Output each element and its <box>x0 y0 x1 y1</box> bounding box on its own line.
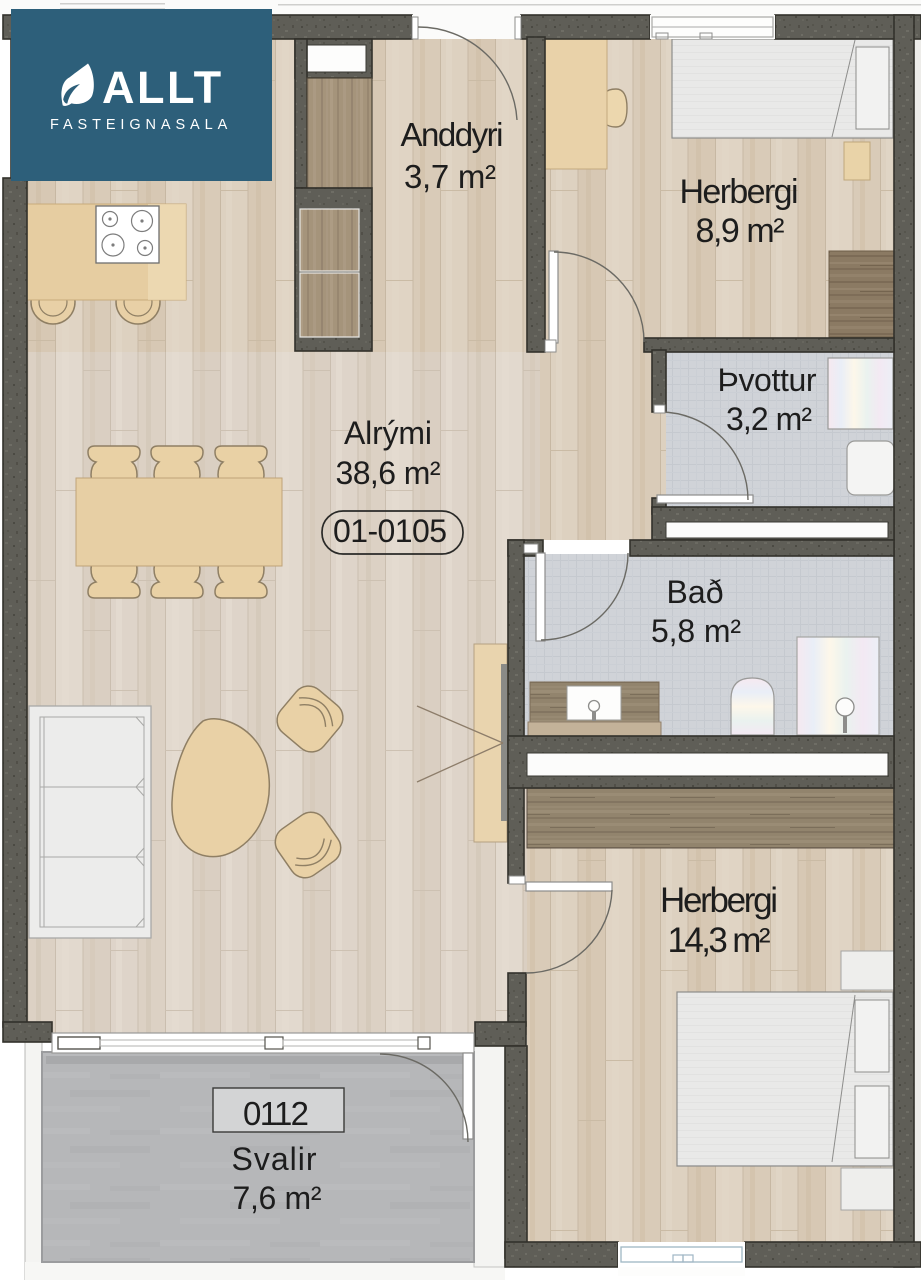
svg-text:Anddyri: Anddyri <box>401 116 504 153</box>
svg-text:ALLT: ALLT <box>102 62 224 113</box>
svg-text:Þvottur: Þvottur <box>718 362 817 398</box>
svg-text:Herbergi: Herbergi <box>660 881 778 920</box>
svg-text:3,2 m²: 3,2 m² <box>726 401 812 437</box>
svg-text:7,6 m²: 7,6 m² <box>233 1180 322 1216</box>
svg-text:01-0105: 01-0105 <box>333 513 447 549</box>
svg-text:FASTEIGNASALA: FASTEIGNASALA <box>50 117 232 133</box>
svg-text:5,8 m²: 5,8 m² <box>651 613 741 649</box>
svg-text:38,6 m²: 38,6 m² <box>336 455 441 491</box>
svg-text:Herbergi: Herbergi <box>680 173 799 211</box>
svg-text:14,3 m²: 14,3 m² <box>668 921 771 960</box>
svg-text:0112: 0112 <box>243 1095 309 1132</box>
svg-text:Alrými: Alrými <box>344 415 432 451</box>
svg-text:8,9 m²: 8,9 m² <box>696 212 785 250</box>
svg-text:3,7 m²: 3,7 m² <box>404 158 496 195</box>
svg-text:Bað: Bað <box>667 574 724 610</box>
svg-text:Svalir: Svalir <box>232 1141 317 1177</box>
